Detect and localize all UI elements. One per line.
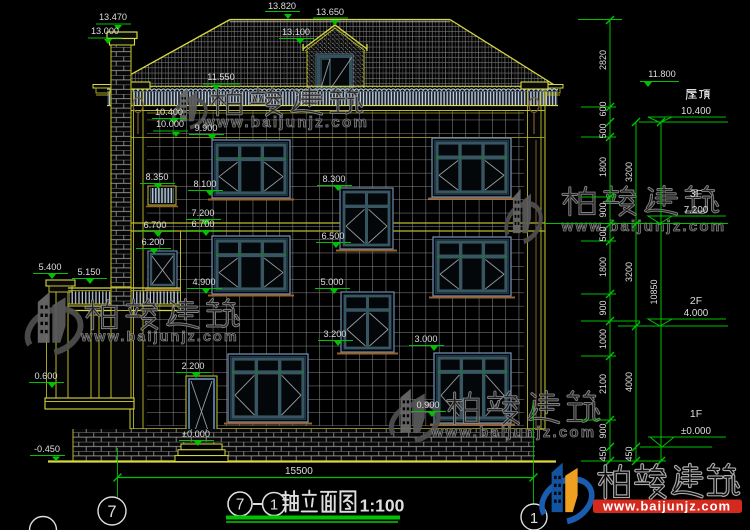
svg-text:4.900: 4.900 bbox=[193, 277, 216, 287]
svg-text:www.baijunjz.com: www.baijunjz.com bbox=[431, 424, 597, 441]
svg-text:5.150: 5.150 bbox=[78, 267, 101, 277]
svg-text:3200: 3200 bbox=[624, 162, 634, 182]
svg-text:13.100: 13.100 bbox=[282, 27, 310, 37]
svg-text:-0.450: -0.450 bbox=[34, 444, 60, 454]
svg-text:4.000: 4.000 bbox=[684, 308, 709, 319]
svg-text:1: 1 bbox=[530, 510, 538, 527]
svg-text:500: 500 bbox=[598, 123, 608, 138]
svg-text:www.baijunjz.com: www.baijunjz.com bbox=[561, 218, 727, 235]
svg-text:7.200: 7.200 bbox=[684, 205, 709, 216]
svg-text:900: 900 bbox=[598, 202, 608, 217]
svg-text:15500: 15500 bbox=[285, 466, 313, 477]
svg-text:10.400: 10.400 bbox=[681, 106, 712, 117]
svg-text:11.800: 11.800 bbox=[648, 69, 675, 79]
svg-text:450: 450 bbox=[624, 446, 634, 461]
svg-text:13.470: 13.470 bbox=[99, 12, 127, 22]
svg-text:450: 450 bbox=[598, 446, 608, 461]
svg-text:4000: 4000 bbox=[624, 372, 634, 392]
svg-text:600: 600 bbox=[598, 101, 608, 116]
svg-text:±0.000: ±0.000 bbox=[681, 426, 711, 437]
svg-text:1: 1 bbox=[270, 497, 278, 514]
svg-text:1000: 1000 bbox=[598, 329, 608, 349]
svg-text:6.200: 6.200 bbox=[142, 237, 165, 247]
svg-text:5.000: 5.000 bbox=[321, 277, 344, 287]
svg-text:www.baijunjz.com: www.baijunjz.com bbox=[80, 329, 239, 345]
svg-text:3F: 3F bbox=[690, 188, 702, 200]
svg-text:1800: 1800 bbox=[598, 257, 608, 277]
svg-text:www.baijunjz.com: www.baijunjz.com bbox=[602, 499, 731, 514]
svg-text:3.000: 3.000 bbox=[415, 334, 438, 344]
svg-text:2.200: 2.200 bbox=[182, 361, 205, 371]
svg-text:500: 500 bbox=[598, 226, 608, 241]
svg-text:www.baijunjz.com: www.baijunjz.com bbox=[202, 114, 369, 131]
svg-text:900: 900 bbox=[598, 300, 608, 315]
svg-text:10.400: 10.400 bbox=[155, 107, 183, 117]
svg-text:0.900: 0.900 bbox=[417, 400, 440, 410]
svg-text:11.550: 11.550 bbox=[207, 72, 234, 82]
svg-text:10.000: 10.000 bbox=[156, 119, 184, 129]
svg-text:9.900: 9.900 bbox=[195, 123, 218, 133]
svg-text:10850: 10850 bbox=[649, 279, 659, 304]
svg-text:0.600: 0.600 bbox=[35, 371, 58, 381]
svg-text:13.650: 13.650 bbox=[316, 7, 344, 17]
svg-text:1800: 1800 bbox=[598, 157, 608, 177]
svg-text:7: 7 bbox=[107, 503, 116, 521]
svg-text:6.700: 6.700 bbox=[192, 219, 215, 229]
svg-text:6.700: 6.700 bbox=[144, 220, 167, 230]
svg-text:2820: 2820 bbox=[598, 50, 608, 70]
svg-text:5.400: 5.400 bbox=[39, 262, 62, 272]
svg-text:3.200: 3.200 bbox=[324, 329, 347, 339]
svg-text:±0.000: ±0.000 bbox=[182, 429, 210, 439]
svg-text:6.500: 6.500 bbox=[322, 231, 345, 241]
svg-text:7.200: 7.200 bbox=[192, 208, 215, 218]
svg-text:3200: 3200 bbox=[624, 262, 634, 282]
svg-text:13.820: 13.820 bbox=[268, 1, 296, 11]
svg-text:8.100: 8.100 bbox=[194, 179, 217, 189]
svg-text:2F: 2F bbox=[690, 295, 702, 307]
svg-text:2100: 2100 bbox=[598, 374, 608, 394]
svg-text:13.000: 13.000 bbox=[91, 26, 119, 36]
svg-text:8.350: 8.350 bbox=[146, 172, 169, 182]
svg-text:900: 900 bbox=[598, 423, 608, 438]
svg-text:1F: 1F bbox=[690, 408, 702, 420]
svg-text:8.300: 8.300 bbox=[323, 174, 346, 184]
svg-text:1:100: 1:100 bbox=[360, 496, 405, 516]
svg-text:7: 7 bbox=[236, 497, 245, 514]
